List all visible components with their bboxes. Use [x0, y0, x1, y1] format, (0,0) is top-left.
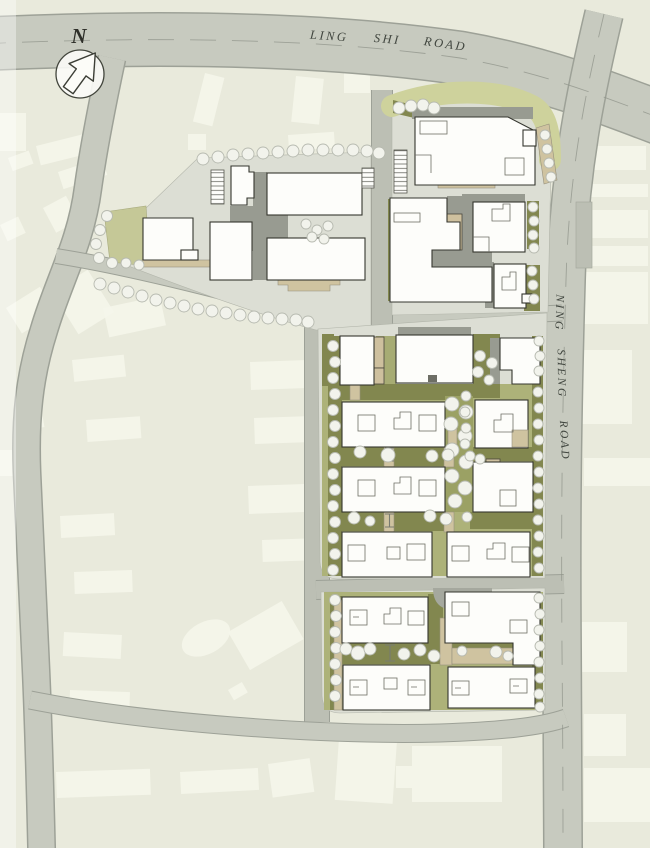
tree-icon [534, 336, 544, 346]
tree-icon [534, 563, 544, 573]
tree-icon [331, 675, 342, 686]
tree-icon [533, 419, 543, 429]
tree-icon [534, 499, 544, 509]
tree-icon [290, 314, 302, 326]
tree-icon [461, 423, 471, 433]
building [473, 462, 533, 512]
tree-icon [328, 405, 339, 416]
building [343, 665, 430, 710]
edge-fade [0, 0, 16, 848]
tree-icon [535, 641, 545, 651]
tree-icon [330, 421, 341, 432]
tree-icon [544, 158, 554, 168]
tree-icon [475, 351, 486, 362]
ning-sheng-word-3: ROAD [557, 419, 571, 461]
tree-icon [136, 290, 148, 302]
site-plan-map: N LING SHI ROAD NING SHENG ROAD [0, 0, 650, 848]
tree-icon [234, 309, 246, 321]
tree-icon [178, 300, 190, 312]
ling-shi-word-2: SHI [373, 31, 401, 47]
tree-icon [102, 211, 113, 222]
tree-icon [534, 435, 544, 445]
tree-icon [330, 453, 341, 464]
tree-icon [373, 147, 385, 159]
tree-icon [490, 646, 502, 658]
tree-icon [257, 147, 269, 159]
tree-icon [462, 512, 472, 522]
tree-icon [330, 389, 341, 400]
tree-icon [457, 646, 467, 656]
building [523, 130, 536, 146]
tree-icon [535, 609, 545, 619]
tree-icon [330, 595, 341, 606]
tree-icon [428, 650, 440, 662]
tree-icon [528, 230, 538, 240]
tree-icon [527, 266, 537, 276]
tree-icon [529, 216, 539, 226]
tree-icon [398, 648, 410, 660]
tree-icon [445, 397, 459, 411]
tree-icon [534, 467, 544, 477]
tree-icon [414, 644, 426, 656]
tree-icon [351, 646, 365, 660]
tree-icon [330, 627, 341, 638]
tree-icon [448, 494, 462, 508]
building [342, 597, 428, 643]
tree-icon [192, 303, 204, 315]
tree-icon [542, 144, 552, 154]
tree-icon [347, 144, 359, 156]
tree-icon [424, 510, 436, 522]
tree-icon [528, 202, 538, 212]
tree-icon [460, 439, 470, 449]
tree-icon [487, 358, 498, 369]
tree-icon [442, 449, 454, 461]
tree-icon [546, 172, 556, 182]
tree-icon [307, 232, 317, 242]
tree-icon [302, 144, 314, 156]
tree-icon [465, 451, 475, 461]
tree-icon [445, 469, 459, 483]
tree-icon [164, 297, 176, 309]
building [181, 250, 198, 260]
tree-icon [428, 102, 440, 114]
tree-icon [533, 483, 543, 493]
tree-icon [122, 286, 134, 298]
tree-icon [330, 517, 341, 528]
tree-icon [503, 651, 513, 661]
tree-icon [535, 702, 545, 712]
tree-icon [533, 387, 543, 397]
tree-icon [364, 643, 376, 655]
tree-icon [150, 294, 162, 306]
tree-icon [340, 643, 352, 655]
tree-icon [534, 531, 544, 541]
tree-icon [365, 516, 375, 526]
tree-icon [330, 659, 341, 670]
tree-icon [444, 417, 458, 431]
tree-icon [533, 515, 543, 525]
building [267, 173, 362, 215]
tree-icon [473, 367, 484, 378]
ling-shi-word-1: LING [309, 28, 349, 45]
tree-icon [134, 260, 144, 270]
tree-icon [417, 99, 429, 111]
ning-sheng-word-1: NING [552, 293, 565, 332]
tree-icon [330, 357, 341, 368]
tree-icon [94, 278, 106, 290]
tree-icon [108, 282, 120, 294]
tree-icon [330, 691, 341, 702]
tree-icon [262, 312, 274, 324]
tree-icon [328, 373, 339, 384]
tree-icon [328, 437, 339, 448]
tree-icon [301, 219, 311, 229]
tree-icon [95, 225, 106, 236]
tree-icon [475, 454, 485, 464]
building [342, 467, 445, 512]
building [447, 532, 530, 577]
tree-icon [323, 221, 333, 231]
building [342, 402, 445, 447]
tree-icon [332, 144, 344, 156]
tree-icon [460, 407, 470, 417]
tree-icon [361, 145, 373, 157]
tree-icon [534, 625, 544, 635]
tree-icon [302, 316, 314, 328]
tree-icon [381, 448, 395, 462]
tree-icon [354, 446, 366, 458]
tree-icon [533, 547, 543, 557]
tree-icon [330, 549, 341, 560]
tree-icon [328, 565, 339, 576]
tree-icon [317, 144, 329, 156]
road-sidewalk-notch [576, 202, 592, 268]
tree-icon [535, 351, 545, 361]
building [267, 238, 365, 280]
tree-icon [529, 243, 539, 253]
tree-icon [319, 234, 329, 244]
tree-icon [248, 311, 260, 323]
tree-icon [534, 657, 544, 667]
tree-icon [426, 450, 438, 462]
tree-icon [107, 258, 118, 269]
tree-icon [328, 533, 339, 544]
tree-icon [227, 149, 239, 161]
tree-icon [535, 673, 545, 683]
tree-icon [212, 151, 224, 163]
tree-icon [206, 305, 218, 317]
ning-sheng-word-2: SHENG [555, 349, 568, 399]
tree-icon [528, 280, 538, 290]
tree-icon [533, 451, 543, 461]
tree-icon [272, 146, 284, 158]
tree-icon [328, 501, 339, 512]
building [448, 667, 535, 708]
tree-icon [529, 294, 539, 304]
tree-icon [121, 258, 131, 268]
building [473, 202, 525, 252]
tree-icon [328, 469, 339, 480]
tree-icon [197, 153, 209, 165]
tree-icon [242, 148, 254, 160]
tree-icon [540, 130, 550, 140]
building [210, 222, 252, 280]
tree-icon [534, 366, 544, 376]
tree-icon [534, 593, 544, 603]
tree-icon [220, 307, 232, 319]
tree-icon [405, 100, 417, 112]
north-label: N [70, 24, 87, 48]
tree-icon [331, 611, 342, 622]
tree-icon [534, 403, 544, 413]
building [340, 336, 374, 385]
tree-icon [94, 253, 105, 264]
tree-icon [440, 513, 452, 525]
tree-icon [287, 145, 299, 157]
tree-icon [276, 313, 288, 325]
tree-icon [328, 341, 339, 352]
tree-icon [393, 102, 405, 114]
tree-icon [348, 512, 360, 524]
tree-icon [458, 481, 472, 495]
tree-icon [534, 689, 544, 699]
tree-icon [484, 375, 494, 385]
tree-icon [461, 391, 471, 401]
tree-icon [91, 239, 102, 250]
tree-icon [330, 485, 341, 496]
building [494, 264, 526, 308]
